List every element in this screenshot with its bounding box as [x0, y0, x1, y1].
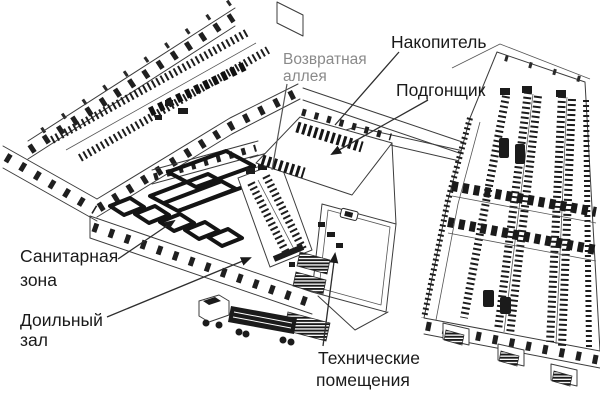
trailer-wheel	[236, 329, 243, 336]
left-barn-gable-openings	[6, 157, 95, 210]
equipment	[336, 243, 343, 248]
left-barn-nw-wall-top	[28, 8, 235, 141]
left-barn-nw-wall-windows	[30, 17, 233, 150]
left-barn-feed-lane	[66, 43, 256, 150]
door-ramp-2	[498, 344, 524, 366]
farm-layout-diagram: Возвратная аллея Накопитель Подгонщик Са…	[0, 0, 600, 402]
left-barn-stall-row-1	[52, 32, 248, 140]
left-barn-roof-vents	[42, 1, 232, 131]
label-return-alley-line2: аллея	[283, 68, 327, 85]
equipment	[327, 232, 335, 237]
label-technical-rooms-line1: Технические	[318, 348, 420, 368]
label-milking-parlor-line2: зал	[20, 330, 48, 350]
truck-wheel	[216, 322, 223, 329]
label-technical-rooms-line2: помещения	[316, 370, 410, 390]
trailer-wheel	[288, 339, 295, 346]
label-sanitary-zone-line2: зона	[20, 270, 57, 290]
label-return-alley-line1: Возвратная	[283, 51, 367, 68]
left-barn-east-gable	[277, 2, 303, 36]
isometric-drawing: Возвратная аллея Накопитель Подгонщик Са…	[0, 0, 600, 402]
milk-tanker-truck	[199, 295, 297, 346]
trailer-wheel	[280, 337, 287, 344]
left-barn-equipment	[165, 100, 173, 106]
truck-wheel	[203, 320, 210, 327]
left-barn-gable-bottom	[3, 168, 97, 221]
label-sanitary-zone-line1: Санитарная	[20, 246, 118, 266]
door-ramp-3	[551, 364, 577, 386]
milking-complex	[90, 112, 396, 341]
left-barn-equipment	[155, 115, 162, 120]
label-crowd-gate: Подгонщик	[396, 80, 486, 100]
left-barn-equipment	[178, 108, 188, 114]
door-ramp-1	[443, 323, 469, 345]
label-milking-parlor-line1: Доильный	[20, 310, 103, 330]
left-barn-feed-fence	[150, 66, 245, 112]
left-barn-gable-top	[3, 146, 97, 199]
equipment	[289, 262, 295, 267]
trailer-wheel	[243, 331, 250, 338]
equipment	[318, 222, 325, 227]
label-holding-area: Накопитель	[391, 32, 487, 52]
